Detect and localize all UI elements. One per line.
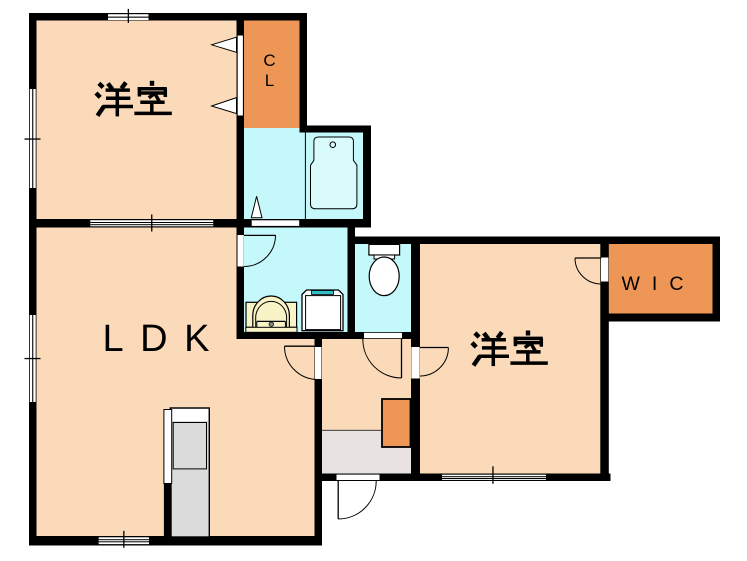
svg-text:WIC: WIC bbox=[622, 273, 696, 295]
svg-text:L: L bbox=[265, 71, 274, 90]
svg-text:C: C bbox=[263, 51, 275, 70]
svg-text:LDK: LDK bbox=[103, 318, 226, 360]
